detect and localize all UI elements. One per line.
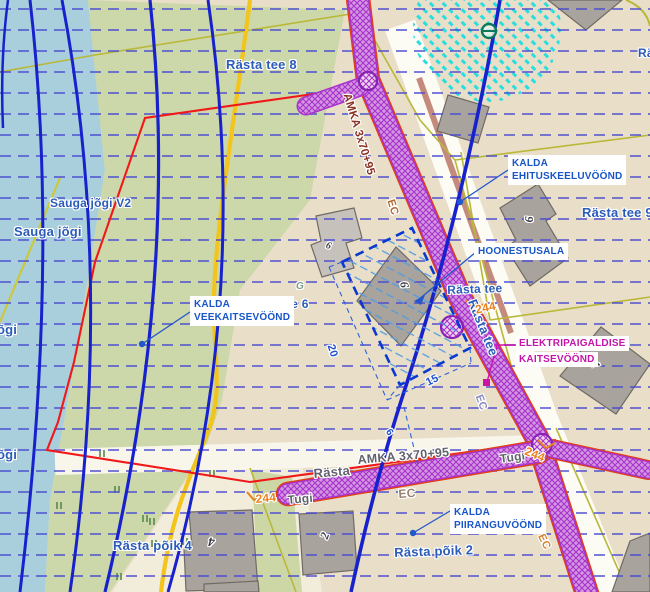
- callout-kalda-piiranguvoond: KALDA PIIRANGUVÖÖND: [450, 504, 546, 534]
- callout-line: ELEKTRIPAIGALDISE: [516, 336, 629, 351]
- callout-hoonestusala: HOONESTUSALA: [474, 243, 568, 260]
- callout-line: KALDA: [194, 298, 290, 311]
- callout-line: KAITSEVÖÖND: [516, 352, 598, 367]
- street-label-rasta-tee-h: Rästa tee: [447, 281, 503, 297]
- water-label-jogi-2: õgi: [0, 447, 17, 462]
- callout-line: VEEKAITSEVÖÖND: [194, 311, 290, 324]
- support-label-tugi-left: Tugi: [287, 491, 313, 507]
- water-label-sauga-jogi-v2: Sauga jõgi V2: [50, 196, 131, 210]
- water-label-jogi-1: õgi: [0, 322, 17, 337]
- street-label-rasta-tee-9: Rästa tee 9: [582, 205, 650, 220]
- callout-line: HOONESTUSALA: [478, 245, 564, 258]
- cable-label-ec-bottom: EC: [398, 486, 416, 501]
- street-label-ra-partial: Rä: [638, 46, 650, 60]
- magenta-cable-marker: [483, 379, 490, 386]
- building-number-9-rasta9: 9: [521, 216, 536, 223]
- street-label-rasta-tee-8: Rästa tee 8: [226, 57, 297, 72]
- building-number-4: 4: [207, 533, 215, 550]
- callout-line: PIIRANGUVÖÖND: [454, 519, 542, 532]
- pole-label-244-left: 244: [255, 490, 277, 506]
- callout-kalda-ehituskeeluvoond: KALDA EHITUSKEELUVÖÖND: [508, 155, 626, 185]
- water-label-sauga-jogi: Sauga jõgi: [14, 224, 82, 239]
- street-label-rasta-poik-2: Rästa põik 2: [394, 542, 473, 560]
- point-marker-well: [481, 24, 497, 38]
- callout-line: EHITUSKEELUVÖÖND: [512, 170, 622, 183]
- street-label-rasta-poik-4: Rästa põik 4: [113, 538, 192, 553]
- street-label-rasta-bottom: Rästa: [313, 463, 351, 481]
- callout-elektripaigaldise-kaitsevoond: ELEKTRIPAIGALDISE KAITSEVÖÖND: [516, 336, 629, 367]
- callout-line: KALDA: [454, 506, 542, 519]
- callout-kalda-veekaitsevoond: KALDA VEEKAITSEVÖÖND: [190, 296, 294, 326]
- map-canvas[interactable]: Rästa tee 8RäRästa tee 9Rästa teeRästa t…: [0, 0, 650, 592]
- utility-label-g: G: [296, 281, 304, 292]
- map-graphics: [0, 0, 650, 592]
- callout-line: KALDA: [512, 157, 622, 170]
